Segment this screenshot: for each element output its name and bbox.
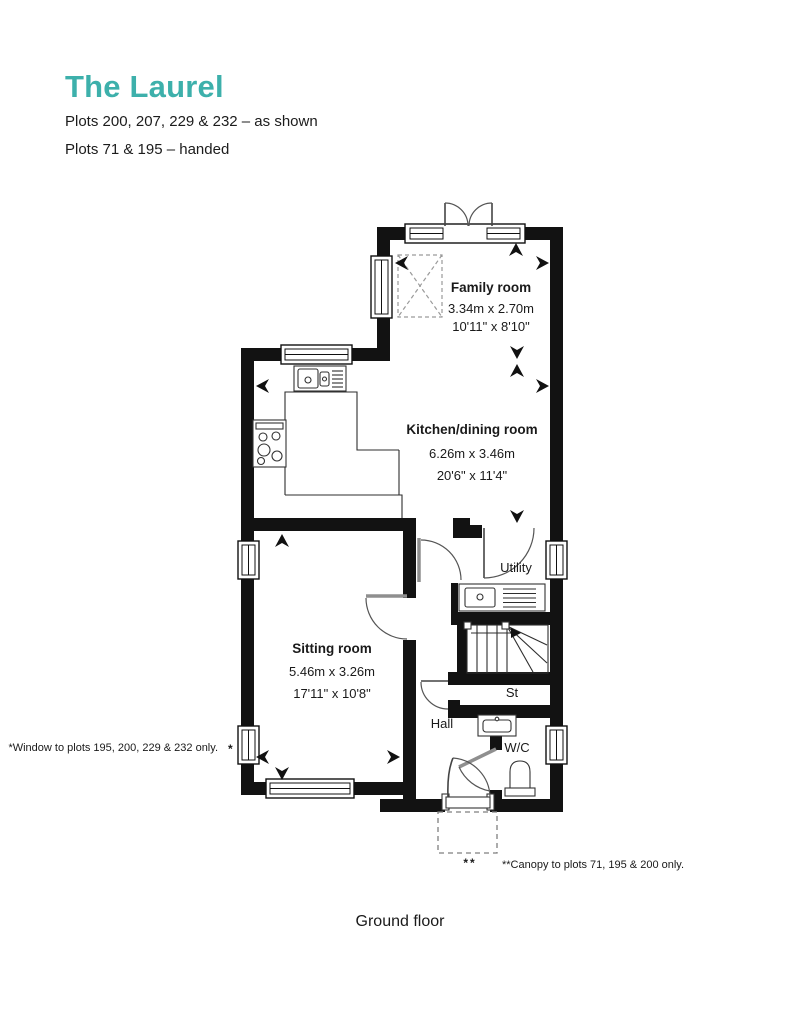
- sitting-room-window-upper: [238, 541, 259, 579]
- floorplan-canvas: The Laurel Plots 200, 207, 229 & 232 – a…: [0, 0, 800, 1036]
- sitting-room-window-lower: [238, 726, 259, 764]
- canopy-note: **Canopy to plots 71, 195 & 200 only.: [502, 859, 684, 871]
- french-doors: [445, 203, 492, 226]
- store-label: St: [506, 685, 519, 700]
- hob: [253, 420, 286, 467]
- window-note: *Window to plots 195, 200, 229 & 232 onl…: [8, 742, 218, 754]
- stairs-direction-arrow: [511, 628, 521, 638]
- sitting-room-window-bottom: [266, 779, 354, 798]
- utility-label: Utility: [500, 560, 532, 575]
- wc-window: [546, 726, 567, 764]
- family-room-label: Family room 3.34m x 2.70m 10'11" x 8'10": [448, 280, 534, 334]
- svg-text:Kitchen/dining room: Kitchen/dining room: [406, 422, 537, 437]
- family-room-window: [371, 256, 392, 318]
- sitting-room-label: Sitting room 5.46m x 3.26m 17'11" x 10'8…: [289, 641, 375, 701]
- svg-text:20'6" x 11'4": 20'6" x 11'4": [437, 468, 508, 483]
- wc-label: W/C: [504, 740, 529, 755]
- svg-text:3.34m x 2.70m: 3.34m x 2.70m: [448, 301, 534, 316]
- store-door: [421, 681, 448, 709]
- svg-text:10'11" x 8'10": 10'11" x 8'10": [452, 319, 530, 334]
- kitchen-hall-door: [419, 538, 461, 582]
- svg-text:17'11" x 10'8": 17'11" x 10'8": [293, 686, 371, 701]
- floorplan-page: The Laurel Plots 200, 207, 229 & 232 – a…: [0, 0, 800, 1036]
- svg-text:Family room: Family room: [451, 280, 531, 295]
- hall-label: Hall: [431, 716, 454, 731]
- svg-text:Sitting room: Sitting room: [292, 641, 372, 656]
- front-door: [442, 758, 494, 810]
- wc-door: [459, 749, 496, 791]
- stairs: [464, 622, 548, 673]
- kitchen-dining-label: Kitchen/dining room 6.26m x 3.46m 20'6" …: [406, 422, 537, 483]
- wc-basin: [478, 715, 516, 736]
- wc-toilet: [505, 761, 535, 796]
- kitchen-counter: [285, 392, 402, 518]
- floor-caption: Ground floor: [356, 913, 446, 930]
- sitting-room-door: [366, 596, 407, 639]
- canopy-note-marker: **: [463, 856, 476, 870]
- notes: *Window to plots 195, 200, 229 & 232 onl…: [8, 742, 684, 871]
- kitchen-window: [281, 345, 352, 364]
- canopy-outline: [438, 812, 497, 853]
- plots-as-shown-line: Plots 200, 207, 229 & 232 – as shown: [65, 113, 318, 130]
- utility-sink: [459, 584, 545, 611]
- french-door-sidelights: [405, 224, 525, 243]
- svg-text:6.26m x 3.46m: 6.26m x 3.46m: [429, 446, 515, 461]
- kitchen-sink: [294, 366, 346, 391]
- window-note-marker: *: [228, 742, 233, 756]
- svg-text:5.46m x 3.26m: 5.46m x 3.26m: [289, 664, 375, 679]
- utility-window: [546, 541, 567, 579]
- page-title: The Laurel: [65, 69, 224, 104]
- plots-handed-line: Plots 71 & 195 – handed: [65, 141, 229, 158]
